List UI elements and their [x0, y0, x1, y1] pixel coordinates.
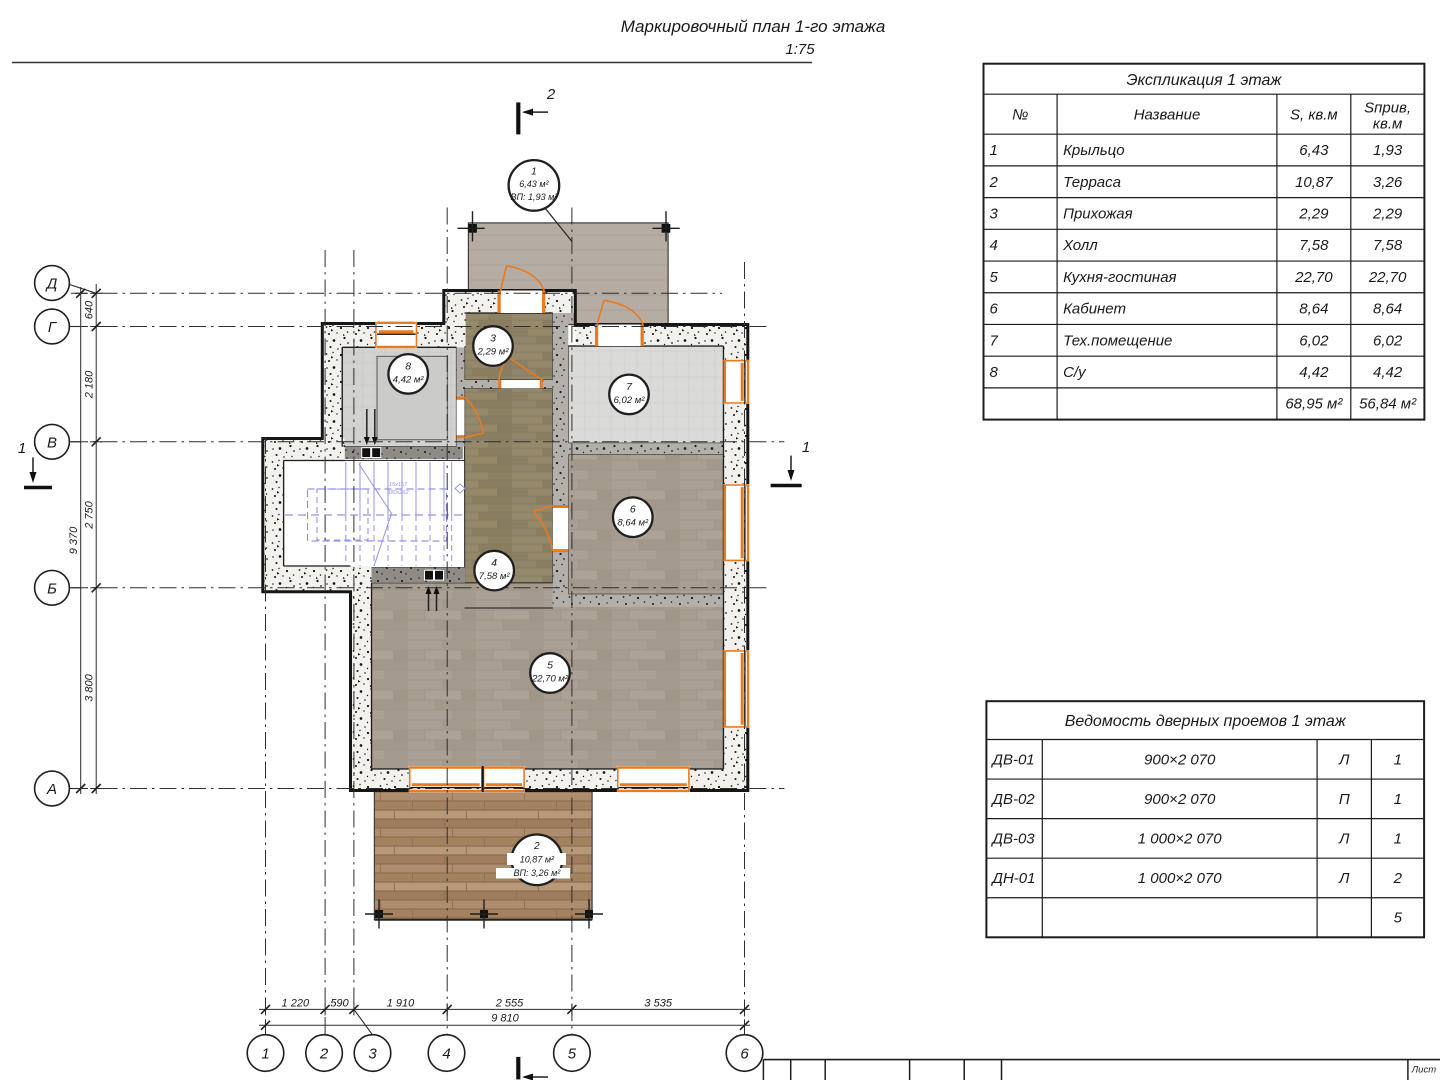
svg-text:22,70: 22,70: [1368, 269, 1407, 286]
svg-text:Б: Б: [47, 580, 57, 597]
svg-text:590: 590: [330, 997, 349, 1009]
svg-text:6: 6: [630, 504, 636, 516]
svg-text:Маркировочный план 1-го этажа: Маркировочный план 1-го этажа: [621, 17, 886, 36]
svg-text:Л: Л: [1338, 870, 1350, 887]
svg-text:6,02 м²: 6,02 м²: [614, 395, 646, 406]
svg-text:Терраса: Терраса: [1063, 174, 1121, 191]
svg-text:1:75: 1:75: [785, 41, 815, 58]
svg-text:7,58 м²: 7,58 м²: [479, 571, 511, 582]
svg-text:2: 2: [319, 1046, 329, 1063]
svg-text:900×2 070: 900×2 070: [1144, 791, 1216, 808]
svg-text:Тех.помещение: Тех.помещение: [1063, 332, 1172, 349]
svg-text:7,58: 7,58: [1373, 237, 1403, 254]
svg-text:Кабинет: Кабинет: [1063, 301, 1126, 318]
svg-text:1 220: 1 220: [282, 997, 310, 1009]
svg-text:56,84 м²: 56,84 м²: [1359, 396, 1417, 413]
svg-text:6,43: 6,43: [1299, 142, 1329, 159]
svg-text:2,29: 2,29: [1372, 205, 1403, 222]
svg-text:9 370: 9 370: [68, 526, 80, 554]
svg-text:4,42: 4,42: [1373, 364, 1403, 381]
svg-text:640: 640: [84, 300, 96, 319]
svg-text:900×2 070: 900×2 070: [1144, 751, 1216, 768]
svg-text:1: 1: [531, 167, 537, 178]
svg-text:1 000×2 070: 1 000×2 070: [1138, 870, 1222, 887]
svg-text:1: 1: [802, 439, 810, 456]
svg-text:1: 1: [990, 142, 998, 159]
svg-text:5: 5: [568, 1046, 577, 1063]
svg-text:2,29 м²: 2,29 м²: [477, 347, 510, 358]
svg-text:15х157: 15х157: [389, 482, 408, 488]
svg-text:Л: Л: [1338, 830, 1350, 847]
svg-text:№: №: [1012, 107, 1028, 124]
svg-text:68,95 м²: 68,95 м²: [1285, 396, 1343, 413]
svg-text:1: 1: [18, 440, 26, 457]
svg-text:180х262: 180х262: [387, 490, 408, 496]
svg-text:1 000×2 070: 1 000×2 070: [1138, 830, 1222, 847]
svg-text:2: 2: [1393, 870, 1403, 887]
svg-text:7: 7: [990, 332, 999, 349]
svg-text:ДН-01: ДН-01: [990, 870, 1035, 887]
svg-text:Экспликация 1 этаж: Экспликация 1 этаж: [1126, 72, 1282, 89]
svg-text:8,64: 8,64: [1373, 301, 1402, 318]
svg-text:4: 4: [491, 557, 497, 569]
svg-text:2: 2: [546, 86, 556, 103]
svg-text:Прихожая: Прихожая: [1063, 205, 1133, 222]
svg-text:1 910: 1 910: [387, 997, 415, 1009]
svg-text:2 180: 2 180: [84, 370, 96, 399]
svg-text:Кухня-гостиная: Кухня-гостиная: [1063, 269, 1176, 286]
svg-text:1: 1: [261, 1046, 269, 1063]
svg-text:2: 2: [989, 174, 999, 191]
svg-text:1: 1: [1394, 830, 1402, 847]
svg-text:2: 2: [533, 841, 540, 852]
svg-text:5: 5: [1394, 910, 1403, 927]
svg-text:ДВ-01: ДВ-01: [990, 751, 1034, 768]
svg-text:кв.м: кв.м: [1373, 116, 1402, 133]
svg-text:6,02: 6,02: [1373, 332, 1403, 349]
svg-text:10,87: 10,87: [1295, 174, 1333, 191]
svg-text:4,42 м²: 4,42 м²: [393, 374, 425, 385]
svg-text:4,42: 4,42: [1299, 364, 1329, 381]
svg-text:Холл: Холл: [1062, 237, 1098, 254]
svg-text:5: 5: [547, 660, 553, 672]
svg-text:2,29: 2,29: [1298, 205, 1329, 222]
svg-text:ВП: 1,93 м²: ВП: 1,93 м²: [511, 192, 559, 202]
svg-text:4: 4: [442, 1046, 450, 1063]
svg-text:22,70 м²: 22,70 м²: [531, 674, 569, 685]
svg-text:3 535: 3 535: [644, 997, 672, 1009]
svg-text:Д: Д: [45, 276, 58, 293]
svg-text:ВП: 3,26 м²: ВП: 3,26 м²: [514, 868, 562, 878]
svg-text:А: А: [46, 781, 57, 798]
svg-text:9 810: 9 810: [491, 1012, 519, 1024]
svg-text:2 750: 2 750: [84, 500, 96, 529]
svg-text:Название: Название: [1134, 107, 1201, 124]
svg-text:В: В: [47, 434, 57, 451]
svg-text:3: 3: [990, 205, 999, 222]
svg-text:3: 3: [368, 1046, 377, 1063]
svg-text:Лист: Лист: [1411, 1065, 1437, 1076]
svg-text:1: 1: [1394, 751, 1402, 768]
svg-text:4: 4: [990, 237, 998, 254]
svg-text:6: 6: [740, 1046, 749, 1063]
svg-text:П: П: [1339, 791, 1350, 808]
svg-text:Sприв,: Sприв,: [1364, 100, 1411, 117]
svg-text:1,93: 1,93: [1373, 142, 1403, 159]
svg-text:6,02: 6,02: [1299, 332, 1329, 349]
svg-text:Крыльцо: Крыльцо: [1063, 142, 1125, 159]
svg-text:ДВ-02: ДВ-02: [990, 791, 1035, 808]
svg-text:5: 5: [990, 269, 999, 286]
svg-text:S, кв.м: S, кв.м: [1290, 107, 1338, 124]
svg-text:3,26: 3,26: [1373, 174, 1403, 191]
svg-text:2 555: 2 555: [495, 997, 524, 1009]
svg-text:8,64: 8,64: [1299, 301, 1328, 318]
svg-text:8,64 м²: 8,64 м²: [617, 518, 649, 529]
svg-text:7,58: 7,58: [1299, 237, 1329, 254]
svg-text:22,70: 22,70: [1294, 269, 1333, 286]
svg-text:6: 6: [990, 301, 999, 318]
svg-text:Л: Л: [1338, 751, 1350, 768]
svg-text:1: 1: [1394, 791, 1402, 808]
svg-text:С/у: С/у: [1063, 364, 1087, 381]
svg-text:Ведомость дверных проемов 1 эт: Ведомость дверных проемов 1 этаж: [1065, 713, 1347, 730]
svg-text:10,87 м²: 10,87 м²: [520, 855, 555, 865]
svg-text:ДВ-03: ДВ-03: [990, 830, 1035, 847]
svg-text:3: 3: [490, 333, 496, 345]
svg-text:8: 8: [405, 360, 411, 372]
svg-text:6,43 м²: 6,43 м²: [519, 179, 549, 189]
svg-text:3 800: 3 800: [84, 673, 96, 701]
svg-text:8: 8: [990, 364, 999, 381]
